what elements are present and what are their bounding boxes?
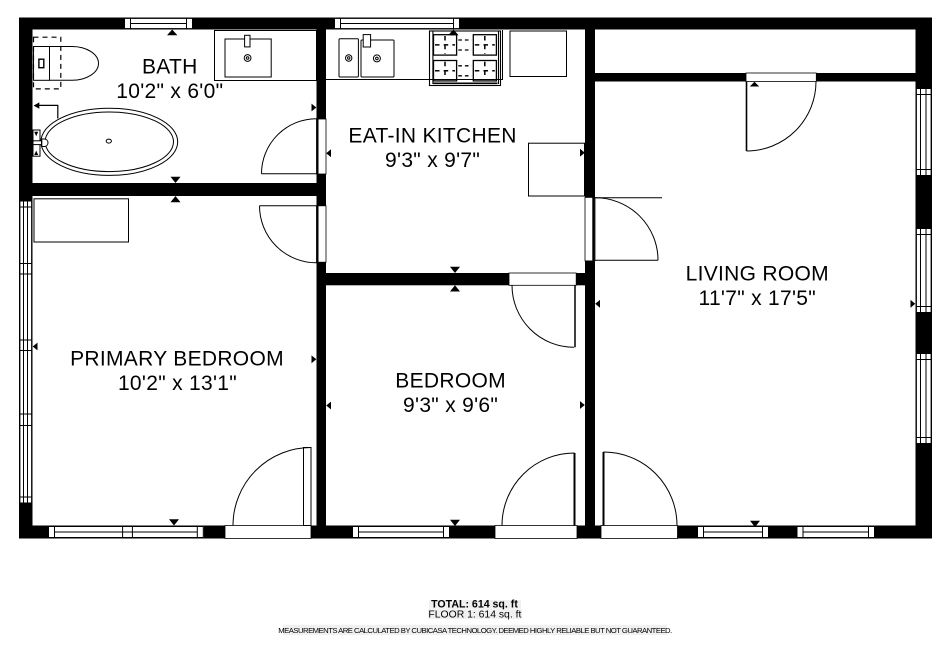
svg-text:FLOOR 1: 614 sq. ft: FLOOR 1: 614 sq. ft	[428, 610, 521, 621]
svg-text:11'7" x 17'5": 11'7" x 17'5"	[699, 287, 817, 310]
svg-text:BATH: BATH	[142, 56, 198, 79]
svg-text:MEASUREMENTS ARE CALCULATED BY: MEASUREMENTS ARE CALCULATED BY CUBICASA …	[278, 626, 672, 635]
svg-text:LIVING ROOM: LIVING ROOM	[686, 263, 829, 286]
svg-text:10'2" x 6'0": 10'2" x 6'0"	[116, 80, 223, 103]
svg-text:9'3" x 9'7": 9'3" x 9'7"	[385, 149, 480, 172]
svg-text:9'3" x 9'6": 9'3" x 9'6"	[403, 394, 498, 417]
svg-text:EAT-IN KITCHEN: EAT-IN KITCHEN	[348, 124, 516, 147]
svg-text:BEDROOM: BEDROOM	[395, 370, 506, 393]
svg-text:10'2" x 13'1": 10'2" x 13'1"	[118, 372, 237, 395]
svg-text:PRIMARY BEDROOM: PRIMARY BEDROOM	[70, 348, 284, 371]
